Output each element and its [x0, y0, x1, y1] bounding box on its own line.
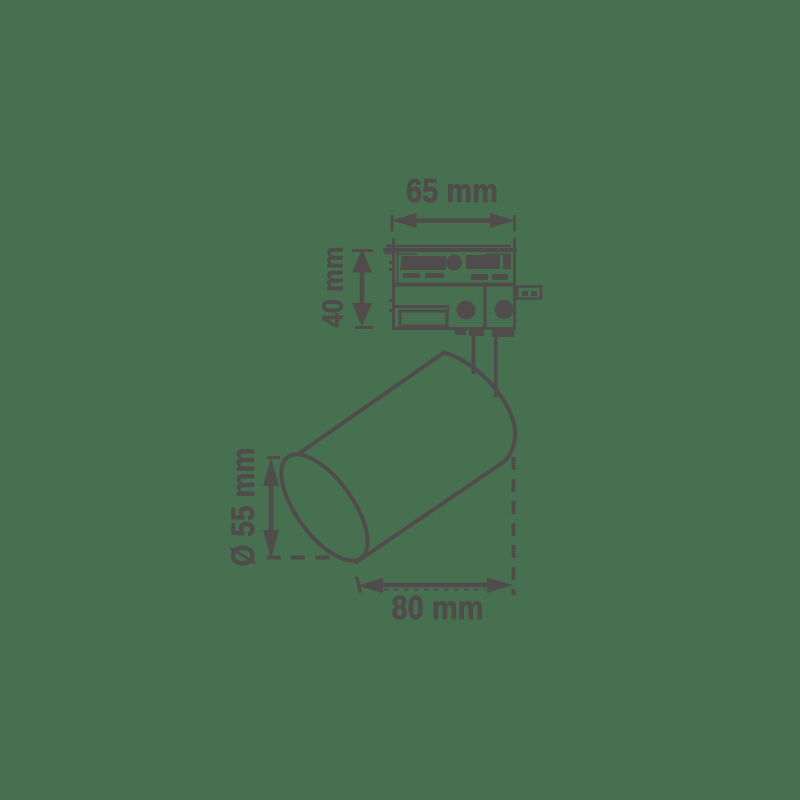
svg-text:Ø 55 mm: Ø 55 mm [226, 448, 261, 567]
svg-text:40 mm: 40 mm [316, 247, 349, 328]
svg-text:80 mm: 80 mm [391, 589, 483, 626]
svg-text:65 mm: 65 mm [406, 172, 498, 209]
